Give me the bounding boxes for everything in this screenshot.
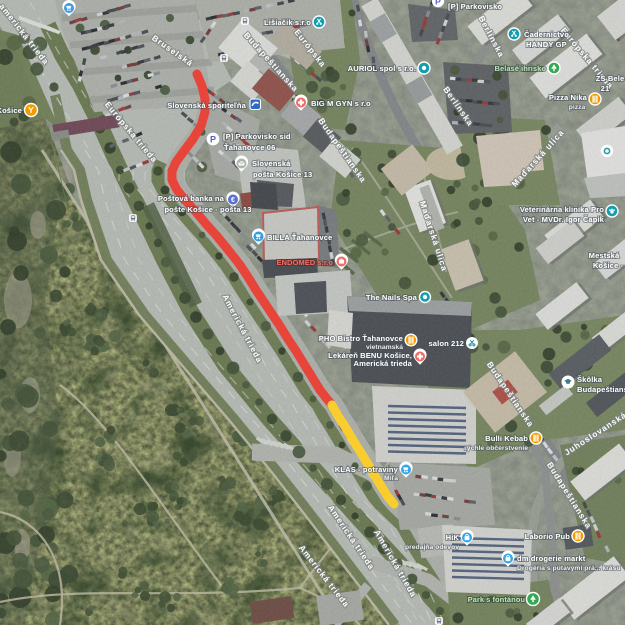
svg-text:Ťahanovce 06: Ťahanovce 06 (224, 143, 275, 152)
svg-text:Lišiačik s.r.o: Lišiačik s.r.o (264, 18, 311, 27)
svg-text:Budapeštianska: Budapeštianska (577, 385, 625, 394)
svg-text:HiK: HiK (446, 533, 460, 542)
svg-text:AURIOL spol s r.o.: AURIOL spol s r.o. (348, 64, 416, 73)
svg-text:pizza: pizza (569, 104, 586, 111)
svg-text:Košice -: Košice - (593, 261, 624, 270)
svg-text:Y: Y (28, 105, 34, 115)
svg-text:Park s fontánou: Park s fontánou (468, 595, 526, 604)
svg-text:Mestská: Mestská (589, 251, 620, 260)
svg-text:Drogéria s pútavými prá... krá: Drogéria s pútavými prá... krásu (517, 565, 621, 572)
svg-text:Poštová banka na: Poštová banka na (158, 194, 225, 203)
svg-text:ZS Bele: ZS Bele (596, 74, 625, 83)
svg-text:Pizza Nika: Pizza Nika (549, 93, 588, 102)
svg-text:rýchle občerstvenie: rýchle občerstvenie (464, 445, 528, 452)
svg-text:21: 21 (601, 84, 610, 93)
svg-text:[P] Parkovisko sid: [P] Parkovisko sid (223, 132, 291, 141)
svg-text:pošta Košice 13: pošta Košice 13 (253, 170, 312, 179)
svg-text:The Nails Spa: The Nails Spa (366, 293, 418, 302)
svg-text:salon 212: salon 212 (428, 339, 464, 348)
svg-text:P: P (435, 0, 441, 6)
svg-text:ENDOMED s.r.o: ENDOMED s.r.o (276, 258, 333, 267)
svg-text:Belasé ihrisko: Belasé ihrisko (495, 64, 547, 73)
svg-text:vietnamská: vietnamská (366, 344, 403, 351)
svg-text:Míľa: Míľa (384, 475, 398, 482)
svg-text:Bulli Kebab: Bulli Kebab (485, 434, 528, 443)
svg-text:Košice: Košice (0, 106, 22, 115)
svg-text:PHO Bistro Ťahanovce: PHO Bistro Ťahanovce (319, 334, 403, 343)
svg-text:BILLA Ťahanovce: BILLA Ťahanovce (267, 233, 332, 242)
svg-text:pošte Košice - pošta 13: pošte Košice - pošta 13 (164, 205, 251, 214)
svg-text:Slovenská: Slovenská (252, 159, 291, 168)
svg-text:dm drogerie markt: dm drogerie markt (517, 554, 586, 563)
svg-text:predajňa odevov: predajňa odevov (405, 544, 459, 551)
svg-text:BIG M GYN s r.o: BIG M GYN s r.o (311, 99, 371, 108)
svg-text:Slovenská sporiteľňa: Slovenská sporiteľňa (167, 101, 246, 110)
svg-text:Veterinárna klinika Pro: Veterinárna klinika Pro (520, 205, 604, 214)
svg-text:KLAS - potraviny: KLAS - potraviny (335, 465, 399, 474)
svg-text:€: € (231, 197, 235, 204)
svg-text:Škôlka: Škôlka (577, 375, 603, 384)
svg-text:Čadernictvo: Čadernictvo (524, 30, 569, 39)
svg-text:P: P (210, 134, 216, 144)
svg-text:Vet - MVDr. Igor Čapik: Vet - MVDr. Igor Čapik (523, 215, 605, 224)
svg-text:[P] Parkovisko: [P] Parkovisko (448, 2, 502, 11)
svg-text:Americká trieda: Americká trieda (354, 359, 413, 368)
svg-text:HANDY GP: HANDY GP (526, 40, 567, 49)
svg-text:Laborio Pub: Laborio Pub (525, 532, 571, 541)
